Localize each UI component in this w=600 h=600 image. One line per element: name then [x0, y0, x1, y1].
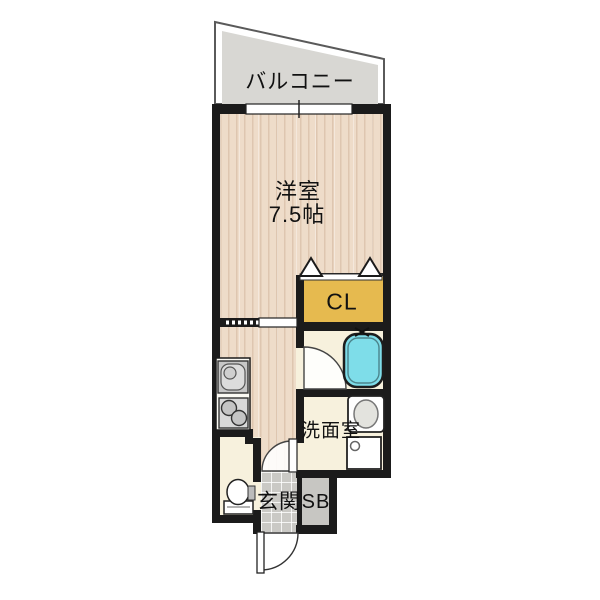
wall-wash-bottom — [296, 470, 391, 478]
wall-room-partition — [212, 318, 262, 327]
washing-machine-pan-icon — [347, 437, 381, 469]
kitchen-counter — [216, 358, 250, 430]
western-room-label: 洋室 — [275, 181, 321, 203]
kitchen-sink-icon — [218, 361, 248, 393]
wall-kitchen-corner — [245, 429, 253, 444]
toilet-icon — [224, 480, 255, 515]
washroom-label: 洗面室 — [301, 422, 361, 441]
entrance-door-swing-icon — [257, 532, 298, 573]
entrance-label: 玄関 — [257, 492, 301, 513]
balcony-label: バルコニー — [245, 72, 355, 93]
wall-closet-bottom — [296, 322, 391, 331]
floor-plan: バルコニー 洋室 7.5帖 CL 洗面室 玄関 SB — [0, 0, 600, 600]
bathroom-door-swing-icon — [304, 347, 346, 389]
closet-label: CL — [326, 291, 357, 314]
western-room-size-label: 7.5帖 — [269, 204, 326, 226]
wall-toilet-right-upper — [253, 438, 261, 482]
wall-bath-left-upper — [296, 331, 304, 348]
wall-left — [212, 104, 220, 523]
wall-toilet-bottom — [212, 515, 261, 523]
stove-burners-icon — [219, 398, 248, 428]
hall-door-swing-icon — [262, 439, 297, 472]
folding-door-icon — [300, 258, 382, 280]
bathtub-icon — [344, 328, 383, 387]
shoe-box-label: SB — [302, 492, 331, 512]
